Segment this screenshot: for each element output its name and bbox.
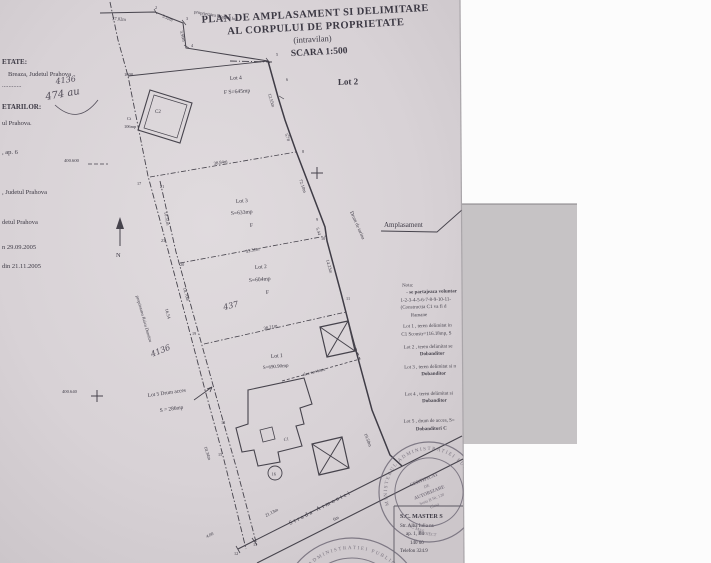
lot2-use: F bbox=[266, 290, 270, 296]
county-line-3: detul Prahova bbox=[2, 219, 38, 226]
point-10: 10 bbox=[321, 236, 325, 241]
amplasament-label: Amplasament bbox=[384, 221, 423, 229]
point-6: 6 bbox=[286, 77, 288, 82]
point-18: 18 bbox=[221, 420, 225, 425]
building-c1-label: C1 bbox=[283, 436, 289, 442]
point-15: 15 bbox=[218, 452, 222, 457]
company-phone: Telefon 324.9 bbox=[400, 549, 428, 554]
lot2-name: Lot 2 bbox=[255, 264, 268, 271]
grid-label-400640: 400.640 bbox=[62, 389, 78, 394]
point-17: 17 bbox=[137, 181, 141, 186]
point-3: 3 bbox=[186, 16, 188, 21]
point-13: 13 bbox=[253, 542, 257, 547]
point-19: 19 bbox=[192, 331, 196, 336]
point-11: 11 bbox=[346, 296, 350, 301]
paper-sheet bbox=[0, 0, 464, 563]
notes-lot5-b: Dobanditori C bbox=[416, 427, 447, 433]
building-ct-area: 106mp bbox=[124, 124, 137, 129]
notes-line-4: Ramane bbox=[411, 313, 428, 318]
title-line3: (intravilan) bbox=[293, 33, 332, 45]
point-8: 8 bbox=[302, 149, 304, 154]
county-line-2: , Judetul Prahova bbox=[2, 189, 47, 196]
underlying-sheet bbox=[460, 204, 577, 444]
point-7: 7 bbox=[288, 134, 290, 139]
owner-heading-fragment: ETATE: bbox=[2, 58, 27, 66]
notes-lot4-b: Dobanditor bbox=[422, 399, 448, 405]
north-label: N bbox=[116, 252, 121, 259]
date-line-1: n 29.09.2005 bbox=[2, 244, 36, 251]
dotted-line: ............ bbox=[2, 82, 22, 89]
county-line-1: ul Prahova. bbox=[2, 120, 32, 127]
date-line-2: din 21.11.2005 bbox=[2, 263, 41, 270]
point-23: 23 bbox=[161, 238, 165, 243]
lot4-name: Lot 4 bbox=[230, 75, 243, 82]
point-5: 5 bbox=[276, 52, 278, 57]
address-line: , ap. 6 bbox=[2, 149, 19, 156]
scanned-cadastral-plan: PLAN DE AMPLASAMENT SI DELIMITARE AL COR… bbox=[0, 0, 711, 563]
point-12: 12 bbox=[234, 551, 238, 556]
point-9: 9 bbox=[316, 217, 318, 222]
owners-heading-fragment: ETARILOR: bbox=[2, 103, 41, 111]
building-c2-label: C2 bbox=[155, 110, 161, 115]
point-21: 21 bbox=[160, 184, 164, 189]
plan-svg: PLAN DE AMPLASAMENT SI DELIMITARE AL COR… bbox=[0, 0, 711, 563]
notes-heading: Nota: bbox=[402, 283, 413, 288]
dim-top: 37.02m bbox=[112, 16, 127, 22]
point-20: 20 bbox=[180, 262, 184, 267]
neighbor-lot2-label: Lot 2 bbox=[338, 76, 359, 87]
lot3-use: F bbox=[250, 223, 254, 229]
notes-lot3-b: Dobanditor bbox=[421, 372, 447, 378]
grid-label-400600: 400.600 bbox=[64, 158, 80, 163]
lot3-name: Lot 3 bbox=[236, 198, 249, 205]
notes-lot2-b: Dobanditor bbox=[420, 352, 446, 358]
lot1-name: Lot 1 bbox=[271, 353, 284, 360]
point-2: 2 bbox=[155, 5, 157, 10]
